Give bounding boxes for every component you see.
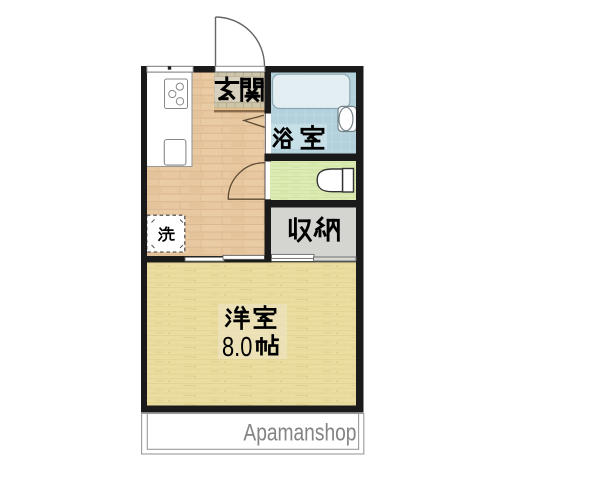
svg-text:8.0: 8.0 — [222, 331, 252, 362]
svg-text:Apamanshop: Apamanshop — [243, 418, 356, 446]
